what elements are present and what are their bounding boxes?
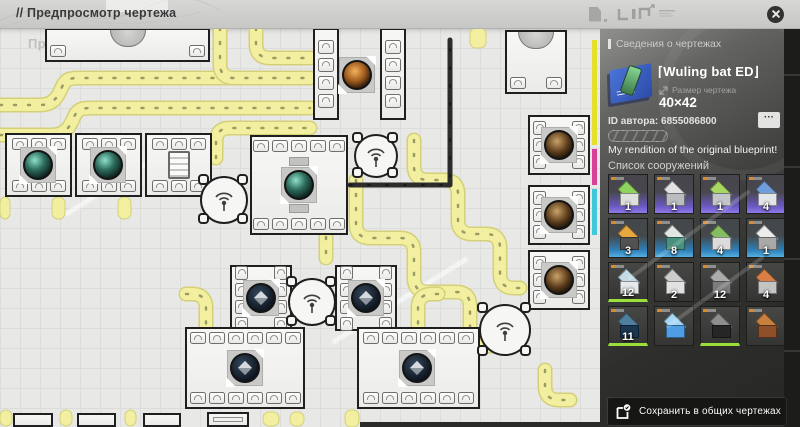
structure-count: 1 [609,201,647,213]
io-port [228,392,244,404]
structure-count: 1 [655,201,693,213]
tile-label [611,221,624,224]
io-port [266,332,282,344]
structure-count: 4 [747,289,785,301]
io-port [510,77,526,89]
structure-count: 1 [747,245,785,257]
tile-label [703,309,716,312]
more-options-button[interactable]: ··· [758,112,780,128]
machine-pad [399,350,435,386]
io-port [385,40,401,54]
save-button-label: Сохранить в общих чертежах [639,406,781,417]
core-orb [544,265,574,295]
machine-pad [243,280,279,316]
structure-tile[interactable]: 1 [746,218,786,258]
core-orb [544,130,574,160]
core-orb [402,353,432,383]
tile-label [703,177,716,180]
structures-grid: 1114384112212411 [608,174,790,346]
size-value: 40×42 [659,95,697,110]
core-orb [230,353,260,383]
io-port [329,218,345,230]
io-port [439,392,455,404]
structure-tile[interactable]: 1 [608,174,648,214]
io-port [171,138,187,150]
io-port [190,392,206,404]
building [380,28,406,120]
tile-label [749,221,762,224]
io-port [318,40,334,54]
io-port [420,332,436,344]
structure-count: 11 [609,331,647,343]
radar-tower [479,304,531,356]
io-port [253,140,269,152]
dome-roof [518,32,554,49]
io-port [318,94,334,108]
blueprint-thumbnail [608,58,654,110]
io-port [329,140,345,152]
blueprint-description: My rendition of the original blueprint! [608,144,780,156]
building [77,413,116,427]
section-marker [608,39,611,49]
structures-list-title: Список сооружений [608,160,709,172]
machine-pad [20,147,56,183]
tile-label [703,265,716,268]
core-orb [544,200,574,230]
radar-tab [198,174,209,185]
radar-tower [200,176,248,224]
io-port [228,332,244,344]
radar-tab [198,213,209,224]
io-port [439,332,455,344]
building [13,413,53,427]
core-orb [351,283,381,313]
machine-device [168,151,190,179]
io-port [253,218,269,230]
io-port [401,332,417,344]
io-port [152,138,168,150]
document-icon [589,7,601,22]
dome-roof [110,30,146,47]
structure-tile[interactable] [746,306,786,346]
size-label: Размер чертежа [672,85,736,95]
building [143,413,181,427]
machine-frame [289,157,309,166]
io-port [310,140,326,152]
building [313,28,339,120]
radar-tab [387,167,398,178]
close-button[interactable] [767,6,784,23]
structure-art-body [712,325,731,338]
io-port [363,392,379,404]
tile-label [657,309,670,312]
save-to-shared-button[interactable]: Сохранить в общих чертежах [608,398,786,425]
radar-tab [477,345,488,356]
io-port [50,45,66,57]
size-icon [659,86,668,95]
machine-frame [289,204,309,213]
tile-label [611,309,624,312]
structure-count: 4 [747,201,785,213]
tile-label [657,221,670,224]
io-port [266,392,282,404]
author-badge [608,130,668,142]
machine-pad [541,197,577,233]
blueprint-map-viewport[interactable]: Предпросмотр чертежа [0,28,600,427]
blueprint-info-panel: Сведения о чертежах ⌈Wuling bat ED⌋ Разм… [600,28,800,427]
io-port [209,392,225,404]
io-port [340,317,353,331]
tile-label [749,309,762,312]
radar-tab [237,213,248,224]
structure-tile[interactable]: 1 [654,174,694,214]
blueprint-preview-screen: // Предпросмотр чертежа Предпросмотр чер… [0,0,800,427]
core-orb [23,150,53,180]
core-orb [284,170,314,200]
io-port [189,45,205,57]
io-port [171,180,187,192]
io-port [318,76,334,90]
structure-art-body [758,325,777,338]
tile-label [749,177,762,180]
radar-tab [325,276,336,287]
structure-tile[interactable] [700,306,740,346]
tile-label [657,177,670,180]
io-port [235,266,248,280]
save-icon [615,404,631,420]
structure-count: 2 [655,289,693,301]
building [505,30,567,94]
io-port [247,392,263,404]
radar-tab [237,174,248,185]
core-orb [342,60,372,90]
radar-tab [477,302,488,313]
io-port [285,332,301,344]
top-bar: // Предпросмотр чертежа [0,0,800,29]
io-port [385,76,401,90]
io-port [379,266,392,280]
radar-tower [354,134,398,178]
radar-tab [325,315,336,326]
section-title: Сведения о чертежах [616,38,721,50]
radar-tab [387,132,398,143]
io-port [340,266,353,280]
io-port [382,332,398,344]
structure-tile[interactable]: 2 [654,262,694,302]
brand-logo-icon [617,4,687,24]
radar-tower [288,278,336,326]
machine-pad [541,127,577,163]
io-port [363,332,379,344]
radar-tab [520,302,531,313]
io-port [272,140,288,152]
page-title: // Предпросмотр чертежа [16,6,176,20]
core-orb [246,283,276,313]
blueprint-name: ⌈Wuling bat ED⌋ [658,64,759,80]
machine-pad [339,57,375,93]
radar-tab [520,345,531,356]
building [45,28,210,62]
io-port [291,140,307,152]
author-id: ID автора: 6855086800 [608,116,717,127]
document-dot-icon [604,19,607,22]
tile-label [611,265,624,268]
io-port [401,392,417,404]
io-port [247,332,263,344]
io-port [458,332,474,344]
io-port [190,332,206,344]
tile-label [657,265,670,268]
io-port [385,94,401,108]
machine-pad [281,167,317,203]
io-port [546,77,562,89]
structure-tile[interactable]: 1 [700,174,740,214]
structure-tile[interactable]: 3 [608,218,648,258]
io-port [420,392,436,404]
io-port [458,392,474,404]
io-port [285,392,301,404]
io-port [291,218,307,230]
structure-tile[interactable]: 4 [746,174,786,214]
io-port [310,218,326,230]
io-port [209,332,225,344]
io-port [272,218,288,230]
panel-side-strip [784,28,800,427]
io-port [190,138,206,150]
structure-tile[interactable]: 4 [746,262,786,302]
structure-tile[interactable]: 11 [608,306,648,346]
radar-tab [352,132,363,143]
machine-pad [541,262,577,298]
structure-count: 3 [609,245,647,257]
structure-count: 12 [609,287,647,299]
machine-pad [348,280,384,316]
radar-tab [286,315,297,326]
building [207,412,249,427]
io-port [382,392,398,404]
machine-pad [227,350,263,386]
radar-tab [286,276,297,287]
io-port [318,58,334,72]
io-port [385,58,401,72]
tile-label [611,177,624,180]
core-orb [93,150,123,180]
io-port [152,180,168,192]
machine-pad [90,147,126,183]
radar-tab [352,167,363,178]
structure-count: 4 [701,245,739,257]
io-port [274,266,287,280]
panel-inset [213,417,243,422]
